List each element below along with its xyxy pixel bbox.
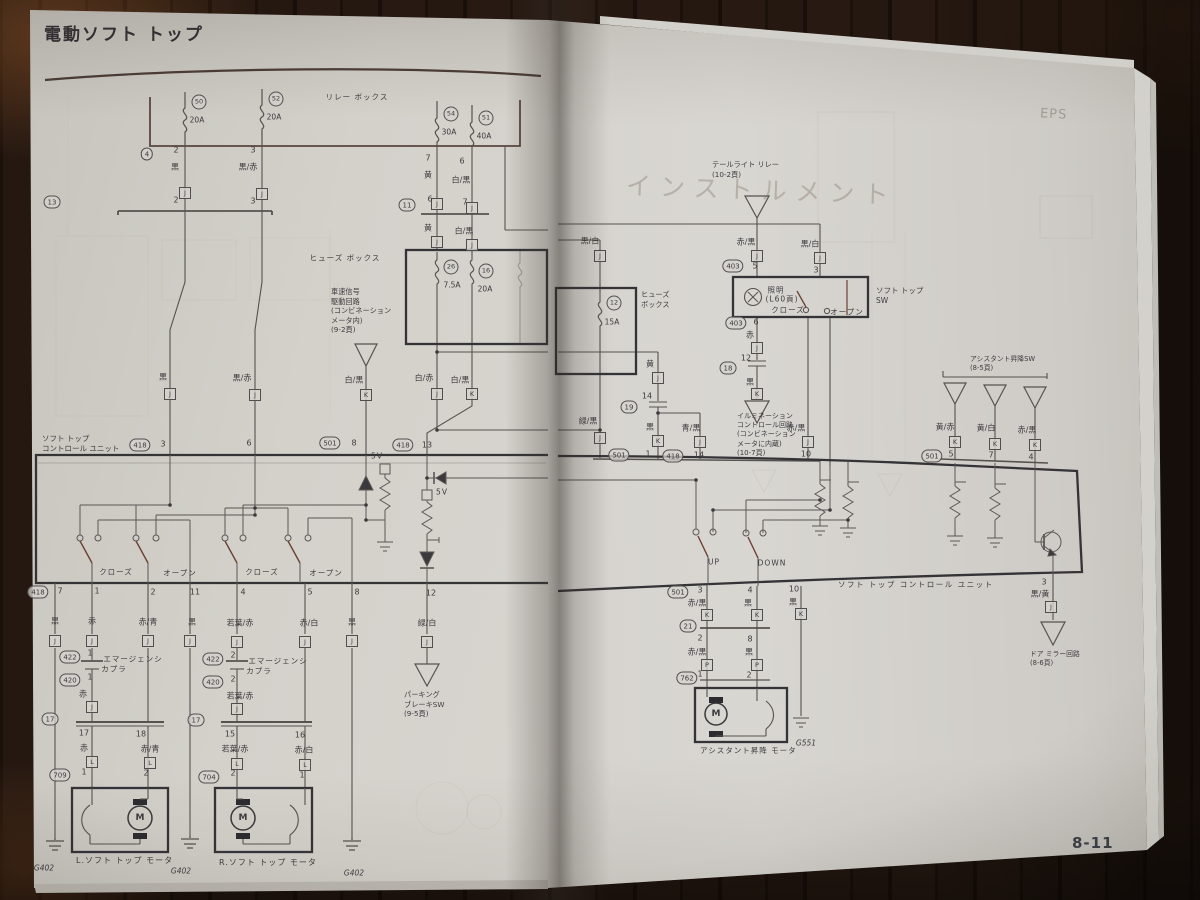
pin-number: 10 [789, 585, 799, 594]
pin-number: 13 [422, 441, 432, 450]
connector-oval: 420 [202, 676, 223, 689]
assist-motor [695, 688, 787, 742]
title-rule [45, 69, 541, 80]
diagram-note: クローズ [771, 305, 805, 316]
pin-number: 6 [459, 157, 464, 166]
page-number: 8-11 [1072, 834, 1114, 854]
wire-color-label: 黒 [159, 372, 167, 383]
wire-color-label: 黄 [424, 223, 432, 234]
wire-color-label: 赤 [80, 743, 88, 754]
connector-code-box: K [989, 438, 1001, 450]
assist-sw-note: アシスタント昇降SW (8-5頁) [970, 355, 1035, 373]
pin-number: 3 [1041, 578, 1046, 587]
ground-label: G402 [34, 864, 54, 873]
pin-number: 2 [230, 769, 235, 778]
assist-sw-triangles [944, 383, 1046, 408]
wire-color-label: 黒/赤 [233, 373, 252, 384]
connector-oval: 704 [198, 771, 219, 784]
soft-top-motor-right [215, 788, 312, 852]
wire-color-label: 白/黒 [452, 175, 471, 186]
wire-color-label: 赤/黒 [688, 598, 707, 609]
motor-m-label: M [239, 813, 248, 823]
diagram-note: オープン [830, 307, 864, 318]
right-page-diagram [556, 196, 1082, 742]
connector-code-box: J [652, 372, 664, 384]
wire-color-label: 白/黒 [455, 226, 474, 237]
connector-code-box: L [144, 757, 156, 769]
connector-oval: 501 [319, 437, 340, 450]
wire-color-label: 赤/白 [295, 745, 314, 756]
connector-oval: 418 [27, 586, 48, 599]
ground-symbol [793, 718, 809, 727]
connector-code-box: J [751, 250, 763, 262]
pin-number: 3 [250, 197, 255, 206]
wire-color-label: 赤/青 [139, 617, 158, 628]
wire-color-label: 赤/黒 [787, 423, 806, 434]
assist-motor-label: アシスタント昇降 モータ [700, 746, 797, 756]
wire-color-label: 黒 [746, 377, 754, 388]
diagram-note: カプラ [246, 666, 272, 677]
pin-number: 3 [160, 440, 165, 449]
motor-left-label: L.ソフト トップ モータ [76, 856, 173, 867]
pin-number: 4 [240, 588, 245, 597]
pin-number: 1 [81, 768, 86, 777]
control-unit-right-internals [693, 461, 1061, 586]
wire-color-label: 青/黒 [682, 423, 701, 434]
diagram-note: UP [708, 558, 720, 567]
pin-number: 3 [813, 266, 818, 275]
connector-code-box: J [231, 636, 243, 648]
diagram-note: 5V [436, 488, 448, 497]
connector-oval: 422 [59, 651, 80, 664]
soft-top-motor-left [72, 788, 168, 852]
connector-code-box: J [49, 635, 61, 647]
soft-top-sw-label: ソフト トップ SW [876, 286, 923, 306]
connector-code-box: K [652, 435, 664, 447]
wire-color-label: 赤 [88, 616, 96, 627]
pin-number: 16 [295, 731, 305, 740]
control-unit-left [36, 455, 548, 583]
connector-code-box: J [1045, 601, 1057, 613]
pin-number: 3 [250, 146, 255, 155]
wire-color-label: 黒 [51, 616, 59, 627]
wire-color-label: 赤/黒 [737, 237, 756, 248]
connector-code-box: J [431, 236, 443, 248]
pin-number: 12 [741, 354, 751, 363]
connector-code-box: J [86, 635, 98, 647]
connector-code-box: J [86, 701, 98, 713]
diode [436, 472, 446, 484]
wire-color-label: 黒 [348, 617, 356, 628]
connector-code-box: J [431, 388, 443, 400]
pin-number: 7 [988, 451, 993, 460]
pin-number: 6 [753, 318, 758, 327]
connector-oval: 403 [725, 317, 746, 330]
pin-number: 2 [173, 196, 178, 205]
off-page-connector-triangle [1041, 622, 1065, 645]
pin-number: 8 [747, 635, 752, 644]
connector-code-box: K [1029, 439, 1041, 451]
pin-number: 1 [697, 670, 702, 679]
diode [359, 476, 373, 490]
wire-color-label: 黒 [745, 647, 753, 658]
connector-oval: 420 [59, 674, 80, 687]
pin-number: 8 [351, 439, 356, 448]
connector-oval: 501 [921, 450, 942, 463]
diagram-note: クローズ [99, 567, 133, 578]
wire-color-label: 黒 [171, 162, 179, 173]
wire-color-label: 黒 [188, 617, 196, 628]
off-page-connector-triangle [415, 664, 439, 686]
connector-code-box: J [421, 636, 433, 648]
connector-oval: 418 [392, 439, 413, 452]
fuse-id-circle: 54 [444, 107, 459, 122]
wire-color-label: 赤/白 [300, 618, 319, 629]
fuse-id-circle: 51 [479, 111, 494, 126]
fuse-id-circle: 52 [269, 92, 284, 107]
pin-number: 1 [299, 771, 304, 780]
pin-number: 5 [307, 588, 312, 597]
ground-symbols-left [46, 836, 361, 850]
pin-number: 12 [426, 589, 436, 598]
connector-oval: 422 [202, 653, 223, 666]
fuse-amp-label: 20A [267, 113, 282, 122]
pin-number: 7 [57, 587, 62, 596]
control-unit-label-left: ソフト トップ コントロール ユニット [42, 434, 119, 454]
pin-number: 8 [354, 588, 359, 597]
fuse-amp-label: 7.5A [443, 281, 460, 290]
connector-oval: 13 [44, 196, 61, 209]
wire-color-label: 緑/白 [418, 618, 437, 629]
wire-color-label: 黄 [646, 359, 654, 370]
connector-oval: 418 [662, 450, 683, 463]
junction-dots-right [598, 411, 850, 522]
connector-code-box: P [701, 659, 713, 671]
connector-oval: 11 [399, 199, 416, 212]
connector-code-box: J [694, 436, 706, 448]
pin-number: 6 [246, 439, 251, 448]
connector-oval: 18 [720, 362, 737, 375]
connector-code-box: K [466, 388, 478, 400]
fuse-box-right-label: ヒューズ ボックス [641, 290, 670, 309]
wire-color-label: 黄/白 [977, 423, 996, 434]
tail-light-relay-note: テールライト リレー (10-2頁) [712, 160, 779, 179]
junction-dots [168, 350, 439, 522]
wire-color-label: 黒/黄 [1031, 589, 1050, 600]
wire-color-label: 赤/青 [141, 744, 160, 755]
pin-number: 2 [230, 651, 235, 660]
motor-m-label: M [136, 813, 145, 823]
mirror-circuit-note: ドア ミラー回路 (8-6頁) [1030, 650, 1080, 668]
diagram-note: DOWN [758, 559, 787, 568]
pin-number: 1 [87, 673, 92, 682]
wire-color-label: 若葉/赤 [227, 618, 254, 629]
pin-number: 2 [230, 675, 235, 684]
ground-label: G551 [796, 739, 816, 748]
connector-code-box: J [346, 635, 358, 647]
wire-color-label: 若葉/赤 [222, 744, 249, 755]
wire-color-label: 赤/黒 [688, 647, 707, 658]
connector-oval: 418 [129, 439, 150, 452]
diagram-note: クローズ [245, 567, 279, 578]
tail-light-relay-triangle [745, 196, 769, 218]
right-lower-wiring [700, 573, 1065, 727]
ground-label: G402 [344, 869, 364, 878]
connector-oval: 501 [667, 586, 688, 599]
photo-of-open-wiring-manual: インストルメント EPS [0, 0, 1200, 900]
connector-code-box: P [751, 659, 763, 671]
ground-label: G402 [171, 867, 191, 876]
pin-number: 2 [697, 634, 702, 643]
diagram-note: (L60頁) [765, 294, 798, 305]
connector-oval: 19 [621, 401, 638, 414]
wire-color-label: 赤 [746, 330, 754, 341]
wire-color-label: 赤/黒 [1018, 425, 1037, 436]
wire-color-label: 赤 [79, 689, 87, 700]
diagram-note: オープン [163, 568, 197, 579]
parking-brake-sw-note: パーキング ブレーキSW (9-5頁) [404, 690, 444, 719]
connector-code-box: J [814, 252, 826, 264]
wire-color-label: 黄/赤 [936, 422, 955, 433]
connector-code-box: J [231, 703, 243, 715]
wire-color-label: 白/黒 [451, 375, 470, 386]
pin-number: 2 [173, 146, 178, 155]
illumination-note: イルミネーション コントロール回路 (コンビネーション メータに内蔵) (10-… [737, 412, 796, 458]
fuse-id-circle: 50 [192, 95, 207, 110]
wire-color-label: 白/黒 [345, 375, 364, 386]
pin-number: 14 [642, 392, 652, 401]
wire-color-label: 黒/赤 [239, 162, 258, 173]
diagram-note: 5V [371, 452, 383, 461]
wire-color-label: 白/赤 [415, 373, 434, 384]
fuse-id-circle: 26 [444, 260, 459, 275]
control-unit-left-internals [38, 455, 548, 583]
fuse-amp-label: 20A [478, 285, 493, 294]
connector-oval: 709 [49, 769, 70, 782]
pin-number: 18 [136, 730, 146, 739]
pin-number: 10 [801, 450, 811, 459]
connector-oval: 17 [188, 714, 205, 727]
fuse-id-circle: 16 [479, 264, 494, 279]
wire-color-label: 黒/白 [801, 239, 820, 250]
connector-oval: 762 [676, 672, 697, 685]
pin-number: 14 [694, 451, 704, 460]
connector-code-box: K [360, 389, 372, 401]
control-unit-label-right: ソフト トップ コントロール ユニット [838, 580, 994, 590]
pin-number: 2 [150, 588, 155, 597]
fuse-amp-label: 40A [477, 132, 492, 141]
section-title: 電動ソフト トップ [44, 24, 204, 46]
pin-number: 2 [143, 769, 148, 778]
diagram-note: ヒューズ ボックス [310, 253, 381, 264]
connector-code-box: J [466, 202, 478, 214]
diagram-note: カプラ [101, 664, 127, 675]
connector-code-box: J [802, 436, 814, 448]
connector-code-box: J [179, 187, 191, 199]
pin-number: 15 [225, 730, 235, 739]
diode [420, 552, 434, 566]
connector-code-box: J [751, 342, 763, 354]
wire-color-label: 黄 [424, 170, 432, 181]
pin-number: 11 [190, 588, 200, 597]
left-page-diagram [36, 69, 548, 852]
wire-color-label: 若葉/赤 [227, 691, 254, 702]
pin-number: 4 [747, 586, 752, 595]
connector-code-box: J [431, 198, 443, 210]
pin-number: 2 [746, 671, 751, 680]
connector-code-box: K [701, 609, 713, 621]
internal-ground [377, 542, 393, 551]
connector-code-box: J [466, 239, 478, 251]
connector-code-box: K [751, 388, 763, 400]
connector-code-box: J [142, 635, 154, 647]
pin-number: 6 [427, 195, 432, 204]
connector-code-box: J [249, 389, 261, 401]
connector-code-box: J [164, 388, 176, 400]
off-page-connector-triangle [355, 344, 377, 366]
connector-code-box: L [86, 756, 98, 768]
fuse-amp-label: 30A [442, 128, 457, 137]
diagram-note: リレー ボックス [326, 92, 389, 103]
wire-color-label: 黒 [789, 597, 797, 608]
pin-number: 3 [697, 586, 702, 595]
pin-number: 5 [752, 262, 757, 271]
wire-color-label: 黒 [744, 598, 752, 609]
pin-number: 7 [462, 198, 467, 207]
motor-m-label: M [712, 709, 721, 719]
pin-number: 1 [87, 649, 92, 658]
pin-number: 7 [425, 154, 430, 163]
pin-number: 4 [1028, 453, 1033, 462]
speed-signal-note: 車速信号 駆動回路 (コンビネーション メータ内) (9-2頁) [331, 287, 391, 335]
connector-code-box: K [795, 608, 807, 620]
connector-oval: 403 [722, 260, 743, 273]
connector-code-box: L [299, 759, 311, 771]
pin-number: 1 [645, 450, 650, 459]
connector-oval: 17 [42, 713, 59, 726]
pin-number: 1 [94, 587, 99, 596]
pin-number: 17 [79, 729, 89, 738]
connector-oval: 21 [680, 620, 697, 633]
connector-code-box: J [299, 636, 311, 648]
fuse-amp-label: 20A [190, 116, 205, 125]
connector-code-box: K [949, 436, 961, 448]
connector-oval: 501 [608, 449, 629, 462]
connector-code-box: J [184, 635, 196, 647]
connector-code-box: J [256, 188, 268, 200]
motor-right-label: R.ソフト トップ モータ [219, 858, 317, 869]
book-gutter-shadow [505, 0, 610, 900]
wire-color-label: 黒 [646, 422, 654, 433]
connector-code-box: K [751, 609, 763, 621]
pin-number: 5 [948, 450, 953, 459]
diagram-note: オープン [309, 568, 343, 579]
